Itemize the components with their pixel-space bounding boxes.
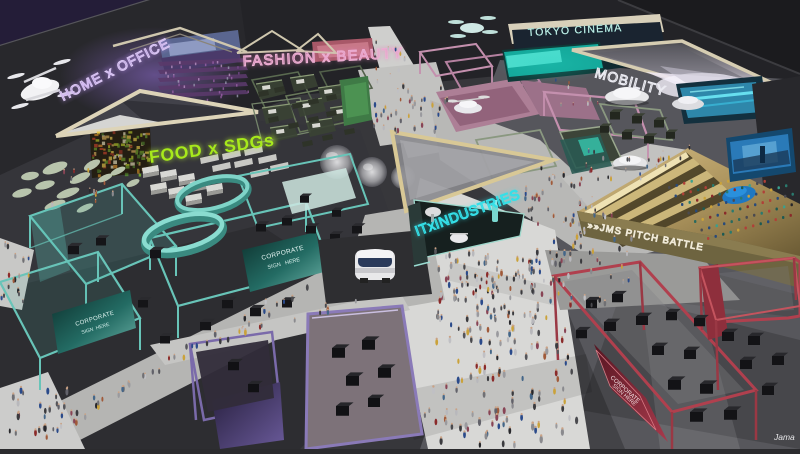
svg-text:Jama: Jama — [773, 432, 795, 442]
